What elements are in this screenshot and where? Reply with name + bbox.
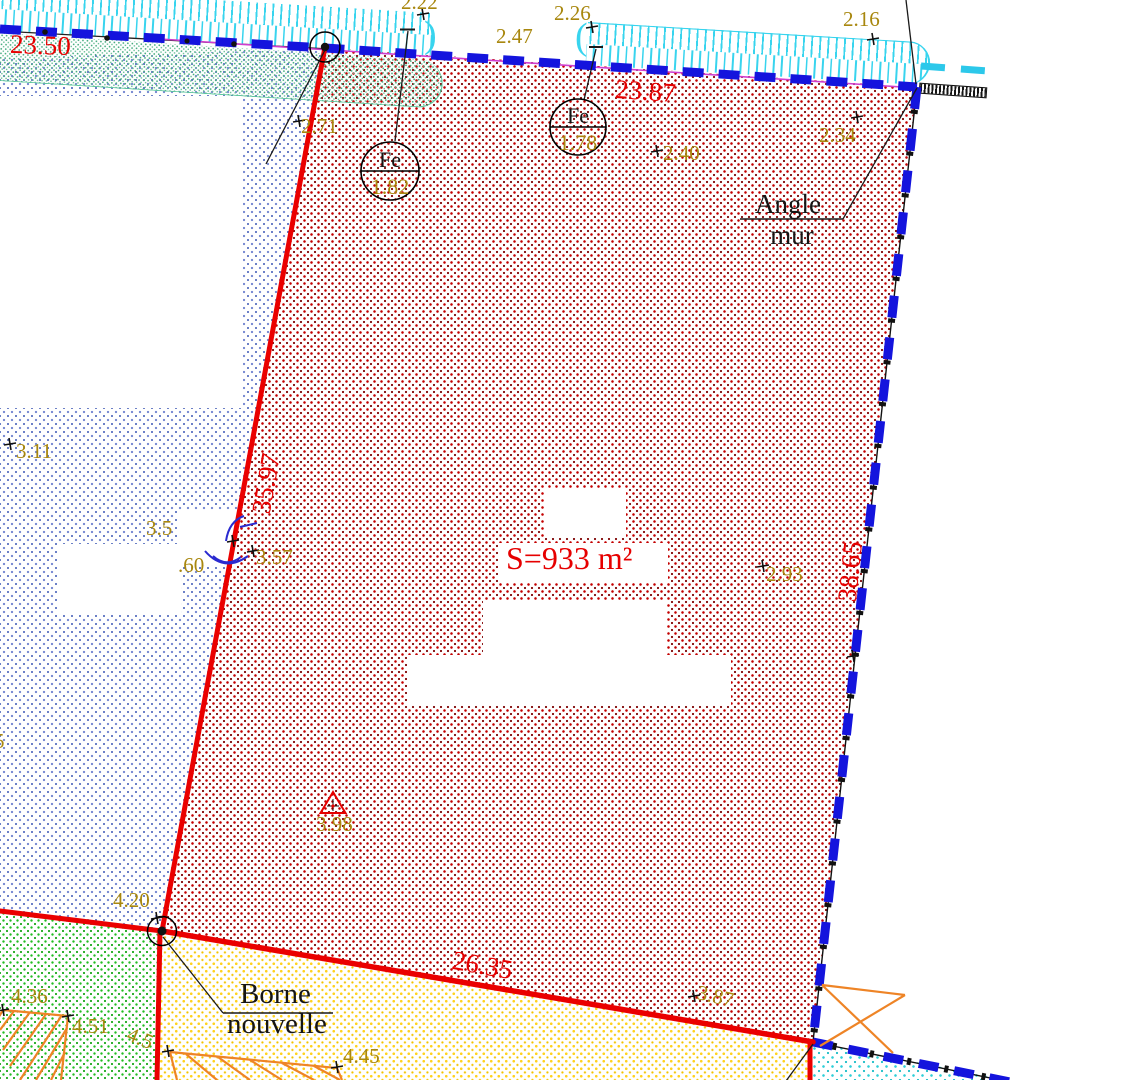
dim-top: 23.87 <box>614 76 676 107</box>
hedge-gap-paren-open: ( <box>575 18 588 56</box>
measure-4-51: 4.51 <box>72 1016 109 1037</box>
bottom-right-boundary-fence <box>813 1042 1010 1080</box>
borne-triangle-symbol <box>321 792 346 813</box>
note-borne-line1: Borne <box>240 980 311 1009</box>
measure-2-34: 2.34 <box>819 125 856 146</box>
measure-2-16: 2.16 <box>843 9 880 30</box>
parcel-area-label: S=933 m² <box>506 542 632 574</box>
measure-4-45: 4.45 <box>343 1046 380 1067</box>
fe2-marker-label: Fe <box>550 105 606 127</box>
measure-2-22: 2.22 <box>401 0 438 13</box>
dim-top-left: 23.50 <box>10 31 72 60</box>
note-borne-line2: nouvelle <box>227 1010 327 1039</box>
measure-2-93: 2.93 <box>766 564 803 585</box>
dim-right: 38.65 <box>834 540 867 603</box>
measure-0-60: .60 <box>178 555 204 576</box>
fe2-marker-value: 1.78 <box>550 132 606 154</box>
measure-3-57: 3.57 <box>256 547 293 568</box>
measure-5-partial: 5 <box>0 731 5 752</box>
cadastral-plan: 23.50 23.87 35.97 38.65 26.35 S=933 m² 2… <box>0 0 1122 1080</box>
note-angle-mur-line2: mur <box>740 222 844 249</box>
measure-3-98: 3.98 <box>316 814 353 835</box>
measure-2-47: 2.47 <box>496 26 533 47</box>
parcel-red-limits <box>0 47 813 1080</box>
measure-crosses <box>0 8 879 1073</box>
measure-3-11: 3.11 <box>16 441 52 462</box>
cyan-dashed-line <box>921 66 988 71</box>
measure-4-36: 4.36 <box>11 986 48 1007</box>
survey-points <box>42 29 340 945</box>
fe1-marker-value: 1.82 <box>361 176 419 198</box>
top-boundary-line <box>0 29 917 88</box>
note-angle-mur-line1: Angle <box>755 191 821 218</box>
hedge-gap-paren-close: ) <box>424 16 437 54</box>
measure-4-20: 4.20 <box>113 890 150 911</box>
fe1-marker-label: Fe <box>361 149 419 171</box>
measure-2-40: 2.40 <box>663 143 700 164</box>
measure-3-5: 3.5 <box>146 518 172 539</box>
measure-2-71: 2.71 <box>301 116 338 137</box>
